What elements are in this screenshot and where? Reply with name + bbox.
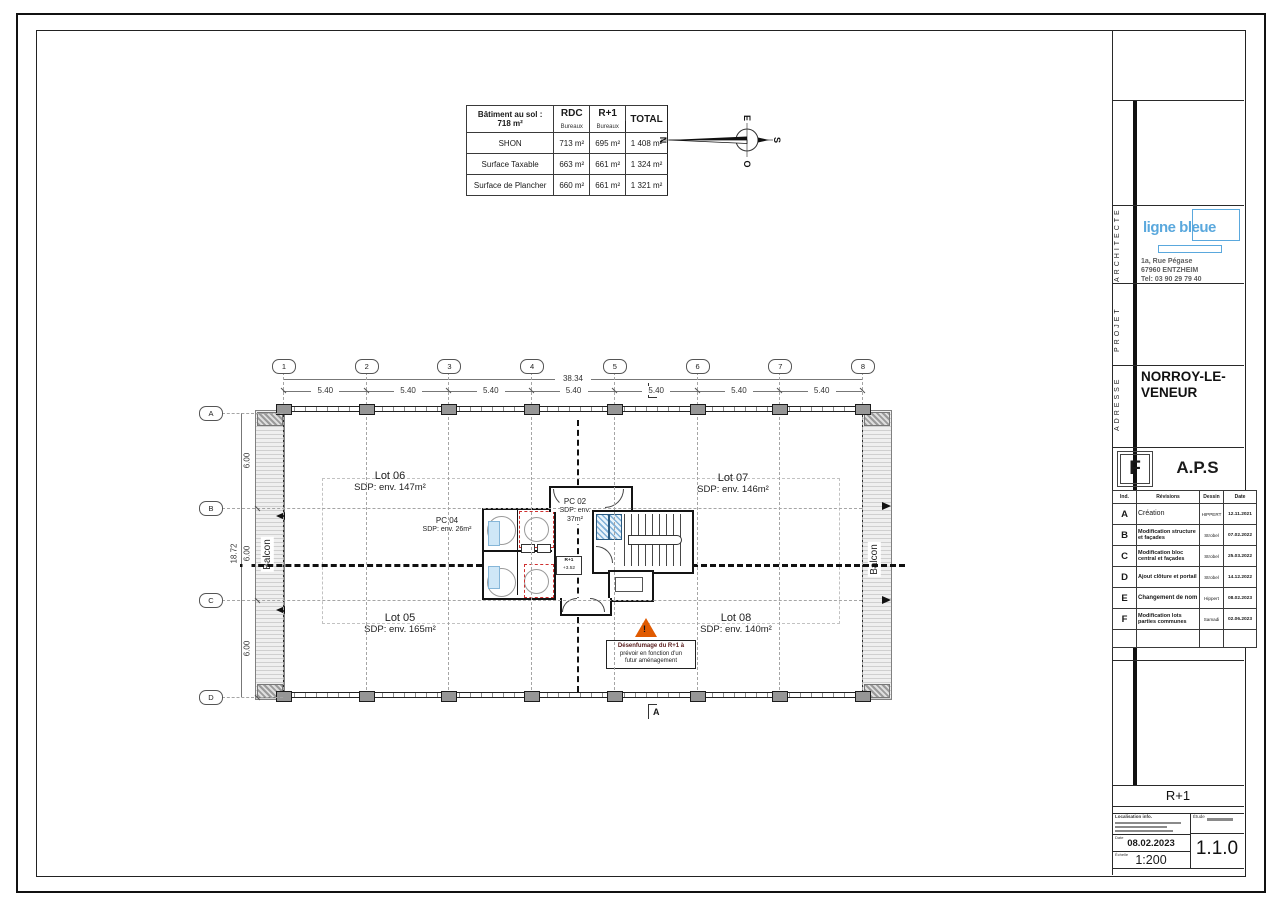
grid-bubble-col: 3 xyxy=(437,359,461,374)
lot-name: Lot 08 xyxy=(700,612,772,624)
grid-line-col xyxy=(283,372,284,700)
future-partition-dashed xyxy=(524,564,554,598)
pc-name: PC 02 xyxy=(560,497,591,506)
side-label-projet: PROJET xyxy=(1114,296,1130,362)
titleblock-left-edge xyxy=(1112,30,1113,875)
grid-bubble-row: A xyxy=(199,406,223,421)
section-marker-top-foot xyxy=(648,397,657,398)
dim-segment-h: 5.40 xyxy=(642,386,670,395)
tb-line xyxy=(1190,833,1244,834)
architect-address3: Tel: 03 90 29 79 40 xyxy=(1141,275,1202,284)
architect-logo: ligne bleue xyxy=(1143,219,1216,236)
duct-shaft xyxy=(596,514,609,540)
dim-segment-h: 5.40 xyxy=(477,386,505,395)
revision-row: D Ajout clôture et portail Strobel 14.12… xyxy=(1113,567,1257,588)
grid-line-col xyxy=(779,372,780,700)
revision-row-empty xyxy=(1113,630,1257,648)
grid-line-col xyxy=(448,372,449,700)
revision-row: F Modification lots parties communes Sam… xyxy=(1113,609,1257,630)
rev-date: 12.11.2021 xyxy=(1224,504,1257,525)
architect-address: 1a, Rue Pégase 67960 ENTZHEIM Tel: 03 90… xyxy=(1141,257,1202,284)
lot-name: Lot 05 xyxy=(364,612,436,624)
tb-line xyxy=(1112,660,1244,661)
column-marker xyxy=(359,404,375,415)
dim-segment-h: 5.40 xyxy=(560,386,588,395)
pc-name: PC 04 xyxy=(423,516,472,525)
warning-note: Désenfumage du R+1 à prévoir en fonction… xyxy=(606,640,696,669)
column-marker xyxy=(359,691,375,702)
pc04-label: PC 04 SDP: env. 26m² xyxy=(423,516,472,534)
revision-table: Ind. Révisions Dessin Date A Création HI… xyxy=(1112,490,1257,648)
loc-text-line xyxy=(1115,826,1167,828)
grid-bubble-col: 5 xyxy=(603,359,627,374)
rev-author: HIPPERT xyxy=(1200,504,1224,525)
titleblock-black-bar xyxy=(1133,100,1137,785)
grid-line-col xyxy=(614,372,615,700)
shower-fixture xyxy=(488,521,500,546)
rev-h-date: Date xyxy=(1224,491,1257,504)
rev-date: 25.03.2022 xyxy=(1224,546,1257,567)
floor-plan: 38.34 18.72 Balcon Balcon xyxy=(0,0,1280,904)
grid-line-col xyxy=(531,372,532,700)
stair-handrail xyxy=(628,535,682,545)
rev-author: Hippert xyxy=(1200,588,1224,609)
rev-date: 07.02.2022 xyxy=(1224,525,1257,546)
sink-fixture xyxy=(521,544,535,553)
grid-bubble-col: 4 xyxy=(520,359,544,374)
grid-bubble-row: C xyxy=(199,593,223,608)
tb-line xyxy=(1112,205,1244,206)
rev-text: Ajout clôture et portail xyxy=(1137,567,1200,588)
lot-sdp: SDP: env. 146m² xyxy=(697,484,769,495)
pc-sdp: SDP: env. 26m² xyxy=(423,525,472,534)
grid-bubble-col: 7 xyxy=(768,359,792,374)
tb-line xyxy=(1112,447,1244,448)
level-marker-elevation: +3.52 xyxy=(557,565,581,573)
grid-line-col xyxy=(862,372,863,700)
rev-h-rev: Révisions xyxy=(1137,491,1200,504)
future-partition-dashed xyxy=(519,511,554,548)
column-marker xyxy=(855,404,871,415)
section-marker-bottom xyxy=(648,704,649,719)
dim-segment-v: 6.00 xyxy=(243,439,252,481)
column-marker xyxy=(855,691,871,702)
dim-segment-v: 6.00 xyxy=(243,533,252,575)
column-marker xyxy=(524,404,540,415)
shower-fixture xyxy=(488,566,500,589)
revision-row: B Modification structure et façades Stro… xyxy=(1113,525,1257,546)
warning-triangle-icon xyxy=(635,618,657,637)
column-marker xyxy=(607,691,623,702)
rev-ind: E xyxy=(1113,588,1137,609)
architect-address2: 67960 ENTZHEIM xyxy=(1141,266,1202,275)
dim-segment-h: 5.40 xyxy=(394,386,422,395)
grid-line-row xyxy=(222,508,862,509)
drawing-number: 1.1.0 xyxy=(1190,838,1244,860)
section-marker-bottom-label: A xyxy=(653,707,660,717)
elevator-car xyxy=(615,577,643,592)
grid-line-row xyxy=(222,600,862,601)
sink-fixture xyxy=(537,544,551,553)
rev-ind: F xyxy=(1113,609,1137,630)
rev-ind: A xyxy=(1113,504,1137,525)
column-marker xyxy=(772,404,788,415)
column-marker xyxy=(690,404,706,415)
section-marker-bottom-foot xyxy=(648,704,657,705)
rev-text: Modification bloc central et façades xyxy=(1137,546,1200,567)
revision-row: A Création HIPPERT 12.11.2021 xyxy=(1113,504,1257,525)
column-marker xyxy=(441,691,457,702)
rev-text: Changement de nom xyxy=(1137,588,1200,609)
pc02-label: PC 02 SDP: env. 37m² xyxy=(560,497,591,524)
tb-line xyxy=(1112,785,1244,786)
balcony-right-label: Balcon xyxy=(868,542,881,577)
level-marker-floor: R+1 xyxy=(557,557,581,565)
lot05-label: Lot 05 SDP: env. 165m² xyxy=(364,612,436,635)
rev-date: 02.06.2023 xyxy=(1224,609,1257,630)
grid-bubble-col: 2 xyxy=(355,359,379,374)
scale-value: 1:200 xyxy=(1112,853,1190,867)
dim-total-h: 38.34 xyxy=(555,374,591,383)
grid-line-col xyxy=(697,372,698,700)
lot08-label: Lot 08 SDP: env. 140m² xyxy=(700,612,772,635)
index-letter-box-inner: F xyxy=(1120,454,1150,484)
date-value: 08.02.2023 xyxy=(1112,838,1190,849)
tb-line xyxy=(1112,365,1244,366)
revision-row: E Changement de nom Hippert 08.02.2023 xyxy=(1113,588,1257,609)
rev-h-des: Dessin xyxy=(1200,491,1224,504)
grid-bubble-row: D xyxy=(199,690,223,705)
phase-label: A.P.S xyxy=(1151,458,1244,478)
column-marker xyxy=(607,404,623,415)
rev-date: 08.02.2023 xyxy=(1224,588,1257,609)
grid-bubble-row: B xyxy=(199,501,223,516)
dim-segment-h: 5.40 xyxy=(725,386,753,395)
warning-exclamation: ! xyxy=(643,624,646,634)
lot-separation-dashed-left xyxy=(240,564,482,567)
rev-author: Samadi xyxy=(1200,609,1224,630)
dim-segment-h: 5.40 xyxy=(311,386,339,395)
etude-text xyxy=(1207,818,1233,821)
rev-author: Strobel xyxy=(1200,567,1224,588)
drawing-title: R+1 xyxy=(1112,788,1244,803)
rev-text: Modification lots parties communes xyxy=(1137,609,1200,630)
grid-line-row xyxy=(222,697,283,698)
warning-line2: prévoir en fonction d'un xyxy=(608,651,694,659)
duct-shaft xyxy=(609,514,622,540)
grid-bubble-col: 8 xyxy=(851,359,875,374)
grid-bubble-col: 6 xyxy=(686,359,710,374)
grid-line-row xyxy=(222,413,283,414)
rev-ind: B xyxy=(1113,525,1137,546)
level-marker: R+1 +3.52 xyxy=(556,556,582,575)
tb-line xyxy=(1112,806,1244,807)
drawing-sheet: Bâtiment au sol : 718 m² RDC R+1 TOTAL B… xyxy=(0,0,1280,904)
loc-text-line xyxy=(1115,830,1173,832)
side-label-architecte: ARCHITECTE xyxy=(1114,208,1130,282)
rev-date: 14.12.2022 xyxy=(1224,567,1257,588)
pc-sdp: 37m² xyxy=(560,515,591,524)
rev-h-ind: Ind. xyxy=(1113,491,1137,504)
rev-author: Strobel xyxy=(1200,546,1224,567)
tb-line xyxy=(1112,834,1190,835)
tb-line xyxy=(1112,868,1244,869)
project-name-line1: NORROY-LE- xyxy=(1141,369,1226,385)
etude-label: Étude xyxy=(1193,814,1205,819)
loc-text-line xyxy=(1115,822,1181,824)
column-marker xyxy=(441,404,457,415)
grid-line-col xyxy=(366,372,367,700)
tb-line xyxy=(1112,100,1244,101)
grid-bubble-col: 1 xyxy=(272,359,296,374)
rev-text: Création xyxy=(1137,504,1200,525)
logo-bar xyxy=(1158,245,1222,253)
rev-author: Strobel xyxy=(1200,525,1224,546)
lot-sdp: SDP: env. 140m² xyxy=(700,624,772,635)
dim-segment-v: 6.00 xyxy=(243,627,252,669)
lot-sdp: SDP: env. 165m² xyxy=(364,624,436,635)
architect-address1: 1a, Rue Pégase xyxy=(1141,257,1202,266)
rev-text: Modification structure et façades xyxy=(1137,525,1200,546)
warning-line3: futur aménagement xyxy=(608,658,694,666)
dim-segment-h: 5.40 xyxy=(808,386,836,395)
rev-ind: D xyxy=(1113,567,1137,588)
core-partition-v xyxy=(517,510,518,595)
column-marker xyxy=(690,691,706,702)
side-label-adresse: ADRESSE xyxy=(1114,366,1130,442)
project-name-line2: VENEUR xyxy=(1141,385,1226,401)
warning-line1: Désenfumage du R+1 à xyxy=(608,643,694,651)
dim-total-v: 18.72 xyxy=(230,533,239,575)
lot-separation-dashed-right xyxy=(692,564,905,567)
project-name: NORROY-LE- VENEUR xyxy=(1141,369,1226,401)
loc-label: Localisation info. xyxy=(1115,814,1152,819)
balcony-outlet-icon xyxy=(882,502,891,510)
revision-row: C Modification bloc central et façades S… xyxy=(1113,546,1257,567)
balcony-outlet-icon xyxy=(882,596,891,604)
column-marker xyxy=(524,691,540,702)
column-marker xyxy=(772,691,788,702)
lot-name: Lot 07 xyxy=(697,472,769,484)
index-letter: F xyxy=(1129,458,1141,479)
lot07-label: Lot 07 SDP: env. 146m² xyxy=(697,472,769,495)
rev-ind: C xyxy=(1113,546,1137,567)
